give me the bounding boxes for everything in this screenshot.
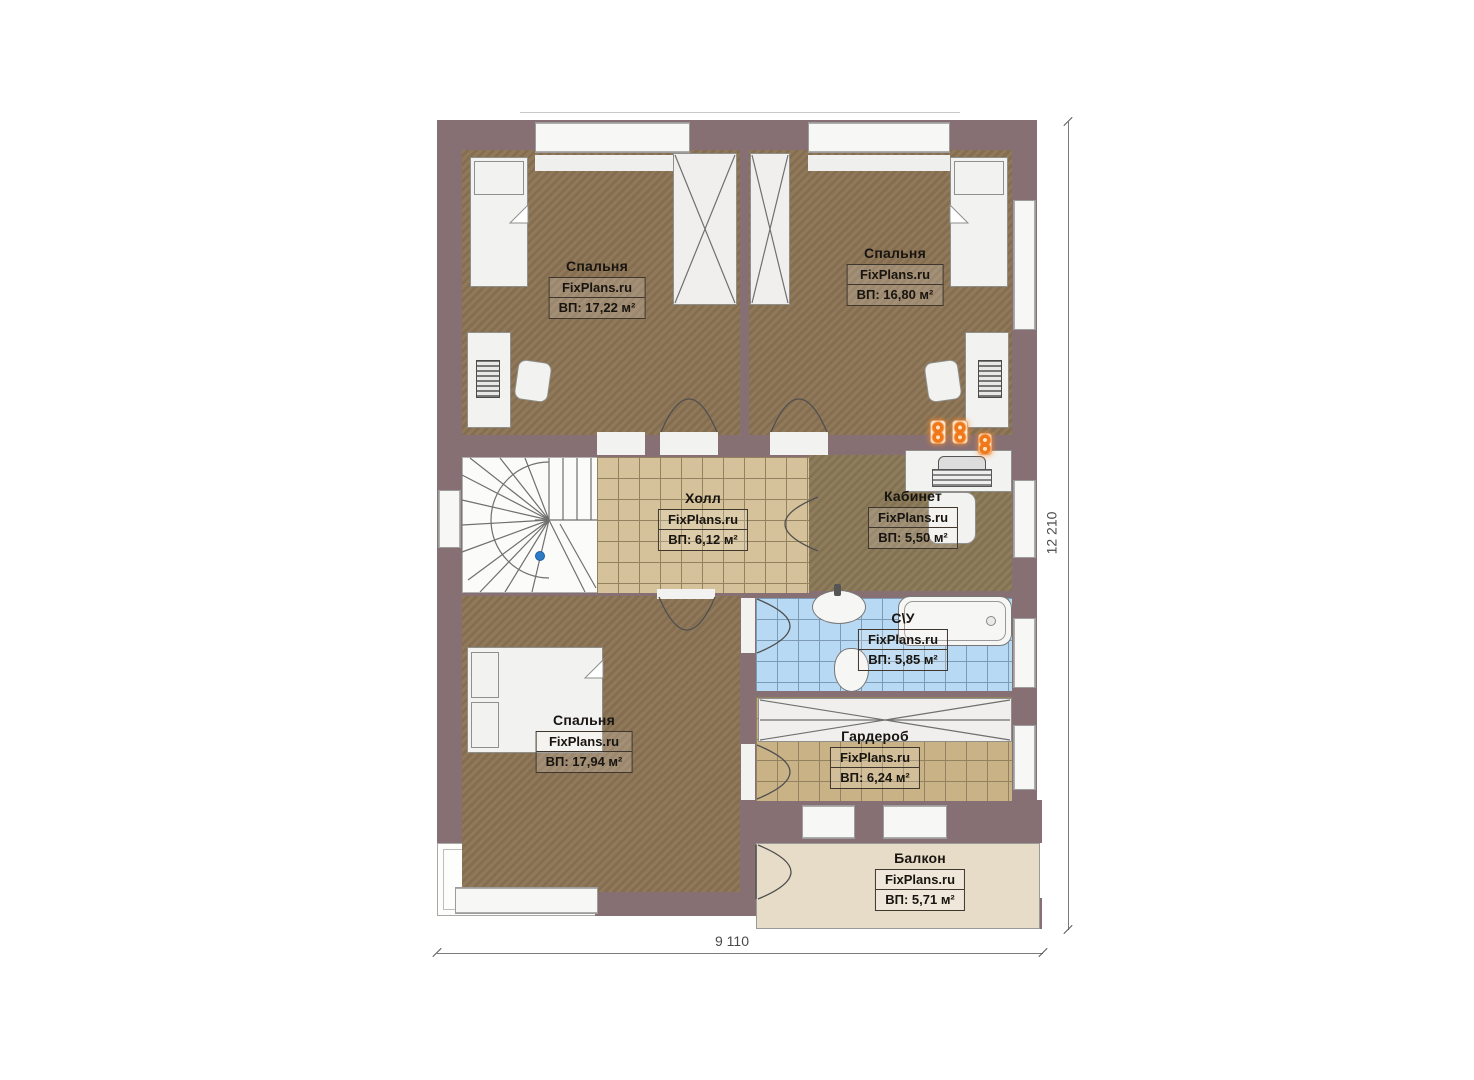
room-name: Спальня <box>847 245 944 261</box>
watermark-fixplans: FixPlans.ru <box>537 732 632 752</box>
window-bedroom3-terrace <box>455 887 598 914</box>
door-opening-bedroom2 <box>770 432 828 455</box>
computer-right <box>978 360 1002 398</box>
door-opening-bedroom1 <box>597 432 645 455</box>
closet-bedroom2 <box>750 153 790 305</box>
room-name: Холл <box>658 490 748 506</box>
room-area: ВП: 17,22 м² <box>550 298 645 318</box>
watermark-fixplans: FixPlans.ru <box>859 630 947 650</box>
door-opening-bedroom1b <box>660 432 718 455</box>
printer-icon <box>932 469 992 487</box>
watermark-box: FixPlans.ru ВП: 16,80 м² <box>847 264 944 306</box>
room-label-bathroom: С\У FixPlans.ru ВП: 5,85 м² <box>858 610 948 671</box>
room-label-bedroom-3: Спальня FixPlans.ru ВП: 17,94 м² <box>536 712 633 773</box>
sink-tap <box>834 584 841 596</box>
sill-top-right <box>808 155 950 171</box>
room-area: ВП: 5,85 м² <box>859 650 947 670</box>
door-opening-bedroom3 <box>657 589 715 599</box>
window-right-bedroom <box>1013 200 1036 330</box>
dimension-line-bottom <box>437 953 1043 954</box>
pillow-double-1 <box>471 652 499 698</box>
watermark-fixplans: FixPlans.ru <box>550 278 645 298</box>
watermark-box: FixPlans.ru ВП: 6,24 м² <box>830 747 920 789</box>
wall-bath-wardrobe <box>756 690 1012 697</box>
window-right-bathroom <box>1013 618 1036 688</box>
room-area: ВП: 5,71 м² <box>876 890 964 910</box>
watermark-box: FixPlans.ru ВП: 5,50 м² <box>868 507 958 549</box>
pillow-left <box>474 161 524 195</box>
room-area: ВП: 6,12 м² <box>659 530 747 550</box>
radiator-icon-2 <box>952 420 968 444</box>
window-balcony-1 <box>802 805 855 839</box>
computer-left <box>476 360 500 398</box>
pillow-double-2 <box>471 702 499 748</box>
room-name: Спальня <box>536 712 633 728</box>
sill-top-left <box>535 155 690 171</box>
room-label-bedroom-1: Спальня FixPlans.ru ВП: 17,22 м² <box>549 258 646 319</box>
room-label-bedroom-2: Спальня FixPlans.ru ВП: 16,80 м² <box>847 245 944 306</box>
watermark-box: FixPlans.ru ВП: 5,85 м² <box>858 629 948 671</box>
eaves-line <box>520 112 960 113</box>
door-opening-bathroom <box>741 598 755 653</box>
floor-stairwell <box>462 457 598 593</box>
bathtub-drain <box>986 616 996 626</box>
window-left-stair <box>438 490 461 548</box>
watermark-fixplans: FixPlans.ru <box>831 748 919 768</box>
window-top-left <box>535 122 690 153</box>
radiator-icon-3 <box>978 433 992 455</box>
dimension-line-right <box>1068 122 1069 930</box>
window-right-wardrobe <box>1013 725 1036 790</box>
room-area: ВП: 16,80 м² <box>848 285 943 305</box>
room-area: ВП: 6,24 м² <box>831 768 919 788</box>
window-right-office <box>1013 480 1036 558</box>
chair-right <box>923 359 962 403</box>
dimension-width: 9 110 <box>715 933 749 949</box>
watermark-box: FixPlans.ru ВП: 17,94 м² <box>536 731 633 773</box>
floor-plan: Спальня FixPlans.ru ВП: 17,22 м² Спальня… <box>0 0 1474 1080</box>
watermark-fixplans: FixPlans.ru <box>876 870 964 890</box>
room-label-office: Кабинет FixPlans.ru ВП: 5,50 м² <box>868 488 958 549</box>
watermark-fixplans: FixPlans.ru <box>869 508 957 528</box>
room-name: С\У <box>858 610 948 626</box>
window-balcony-2 <box>883 805 947 839</box>
printer-top <box>938 456 986 470</box>
room-name: Гардероб <box>830 728 920 744</box>
window-top-right <box>808 122 950 153</box>
radiator-icon-1 <box>930 420 946 444</box>
room-label-hall: Холл FixPlans.ru ВП: 6,12 м² <box>658 490 748 551</box>
room-name: Балкон <box>875 850 965 866</box>
room-label-wardrobe: Гардероб FixPlans.ru ВП: 6,24 м² <box>830 728 920 789</box>
watermark-box: FixPlans.ru ВП: 5,71 м² <box>875 869 965 911</box>
watermark-fixplans: FixPlans.ru <box>848 265 943 285</box>
room-area: ВП: 5,50 м² <box>869 528 957 548</box>
chair-left <box>513 359 552 403</box>
room-area: ВП: 17,94 м² <box>537 752 632 772</box>
watermark-box: FixPlans.ru ВП: 17,22 м² <box>549 277 646 319</box>
watermark-fixplans: FixPlans.ru <box>659 510 747 530</box>
pillow-right <box>954 161 1004 195</box>
room-label-balcony: Балкон FixPlans.ru ВП: 5,71 м² <box>875 850 965 911</box>
room-name: Кабинет <box>868 488 958 504</box>
dimension-height: 12 210 <box>1043 512 1059 555</box>
door-opening-wardrobe <box>741 744 755 800</box>
watermark-box: FixPlans.ru ВП: 6,12 м² <box>658 509 748 551</box>
wall-left <box>437 120 462 843</box>
closet-bedroom1 <box>673 153 737 305</box>
room-name: Спальня <box>549 258 646 274</box>
